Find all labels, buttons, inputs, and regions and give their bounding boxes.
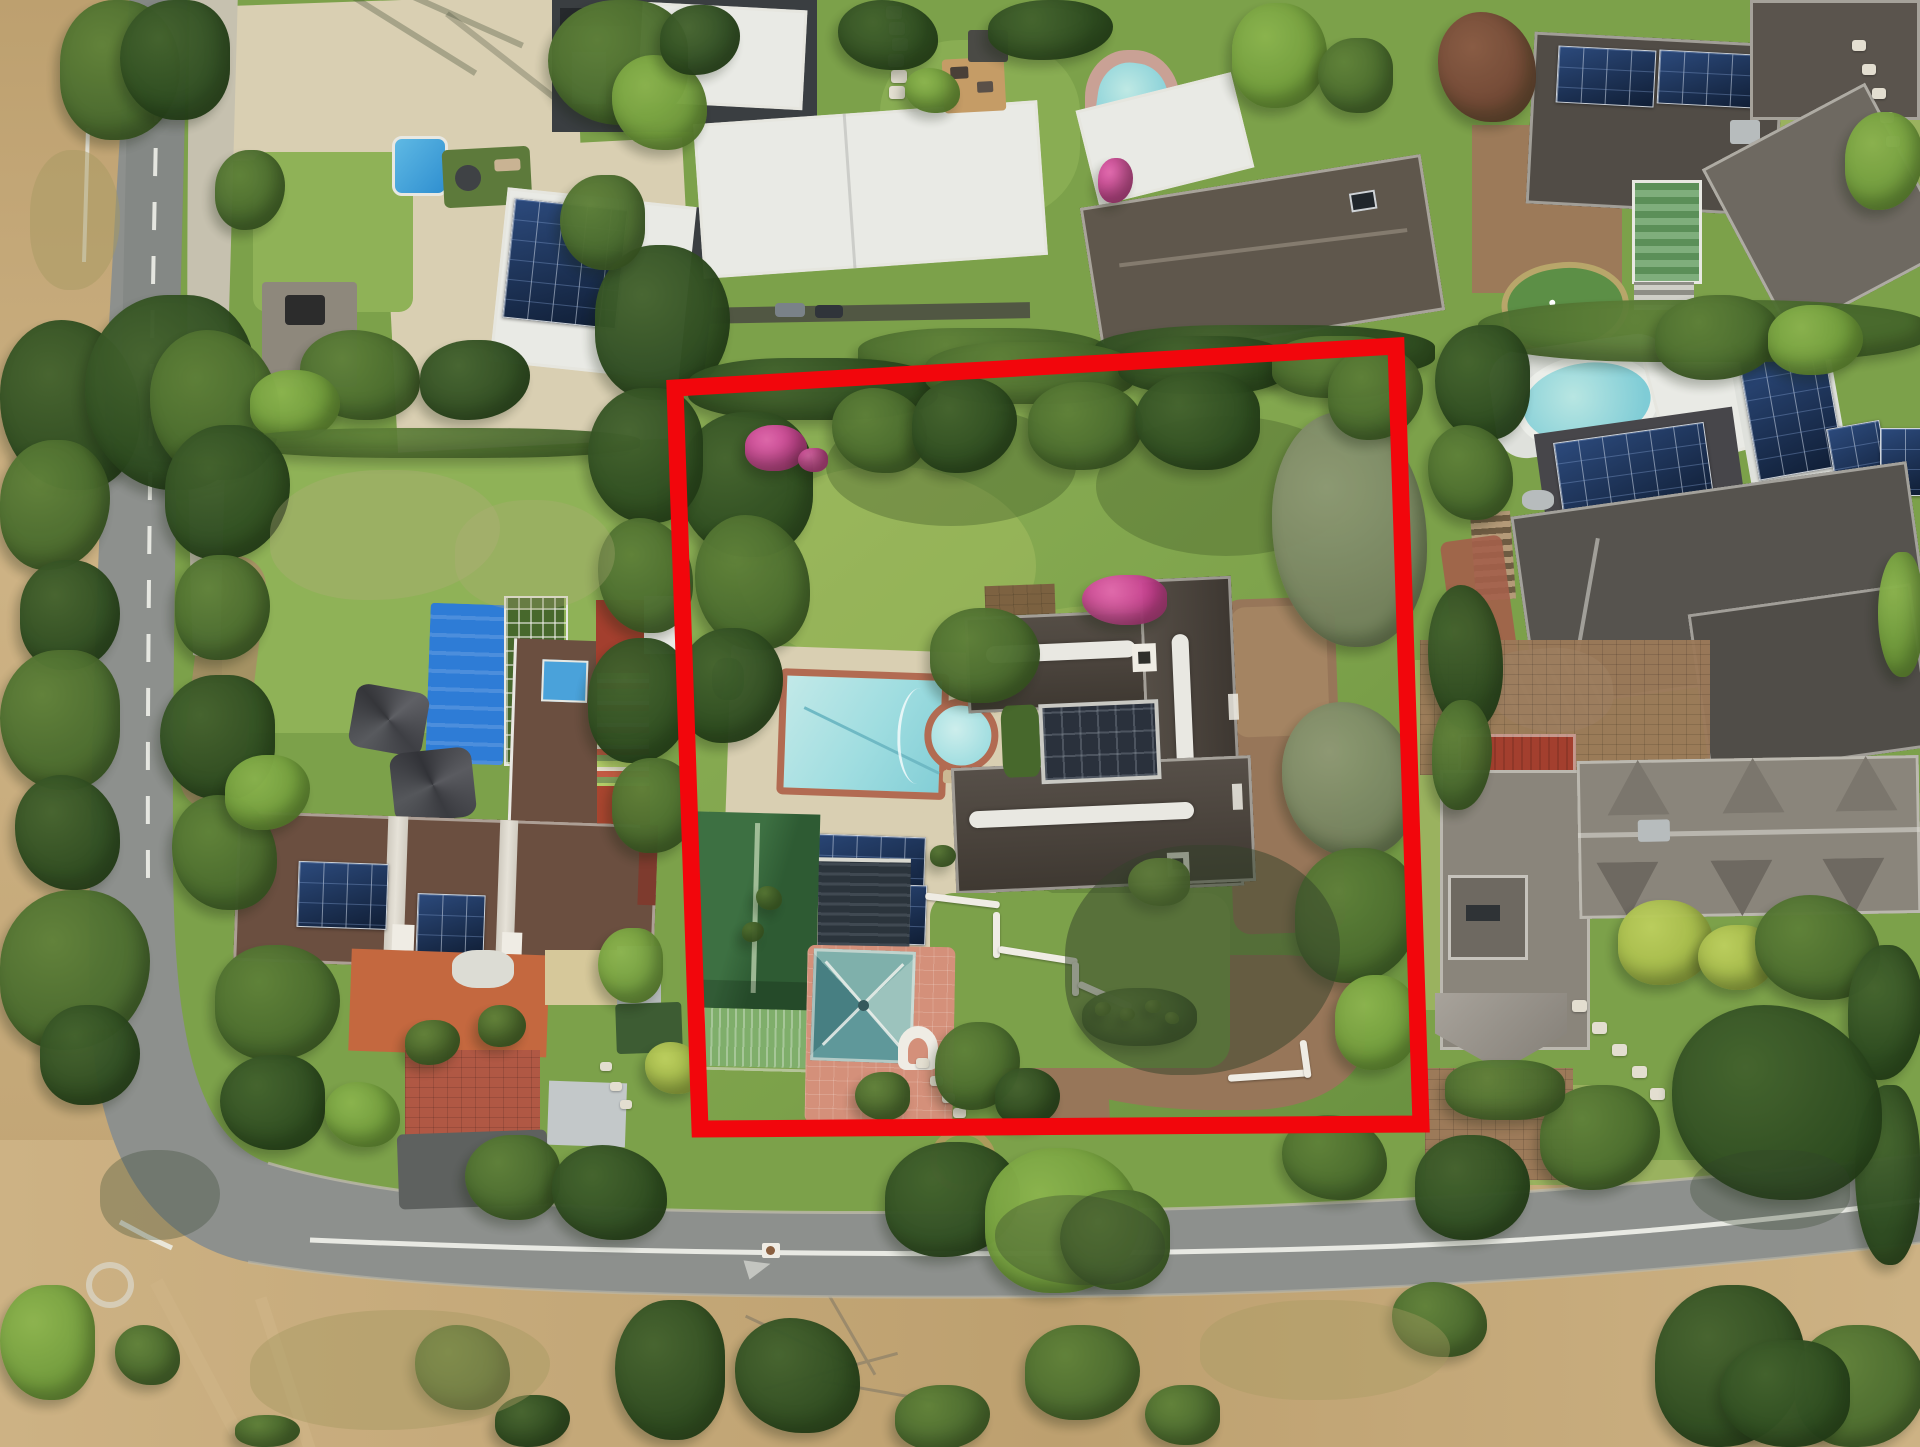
boundary-overlay — [0, 0, 1920, 1447]
property-boundary — [675, 346, 1421, 1129]
aerial-photo-stage — [0, 0, 1920, 1447]
